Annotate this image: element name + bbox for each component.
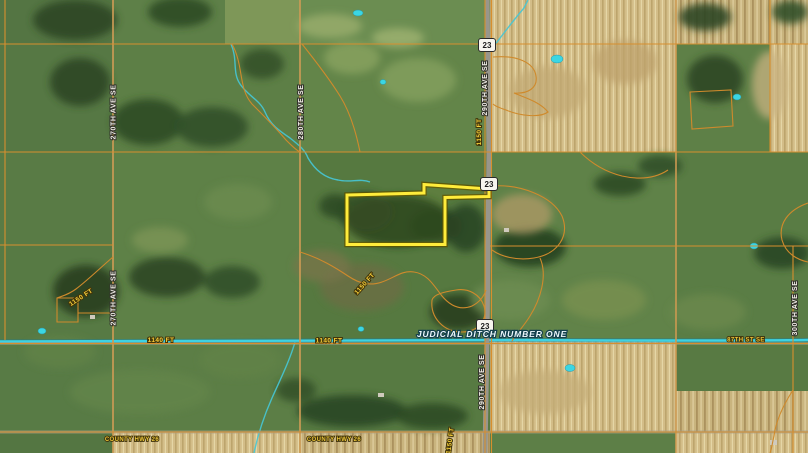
highway-23-shield: 23 [481, 178, 498, 191]
distance-label-1140ft: 1140 FT [316, 338, 343, 345]
distance-label-1150ft: 1150 FT [476, 119, 483, 146]
map-canvas[interactable]: 23 23 23 270TH AVE SE 270TH AVE SE 280TH… [0, 0, 808, 453]
road-label-290th-ave-se: 290TH AVE SE [482, 60, 489, 115]
judicial-ditch-line [0, 340, 808, 342]
road-label-county-hwy-26: COUNTY HWY 26 [105, 437, 160, 443]
shield-number: 23 [485, 180, 494, 189]
road-label-300th-ave-se: 300TH AVE SE [792, 280, 799, 335]
distance-label-1140ft: 1140 FT [148, 337, 175, 344]
road-label-270th-ave-se: 270TH AVE SE [111, 84, 118, 139]
road-label-county-hwy-26: COUNTY HWY 26 [307, 437, 362, 443]
road-label-87th-st-se: 87TH ST SE [727, 338, 765, 344]
road-label-280th-ave-se: 280TH AVE SE [298, 84, 305, 139]
road-label-290th-ave-se: 290TH AVE SE [479, 354, 486, 409]
shield-number: 23 [483, 41, 492, 50]
highway-23-shield: 23 [479, 39, 496, 52]
ditch-label: JUDICIAL DITCH NUMBER ONE [417, 329, 567, 339]
road-label-270th-ave-se: 270TH AVE SE [111, 270, 118, 325]
